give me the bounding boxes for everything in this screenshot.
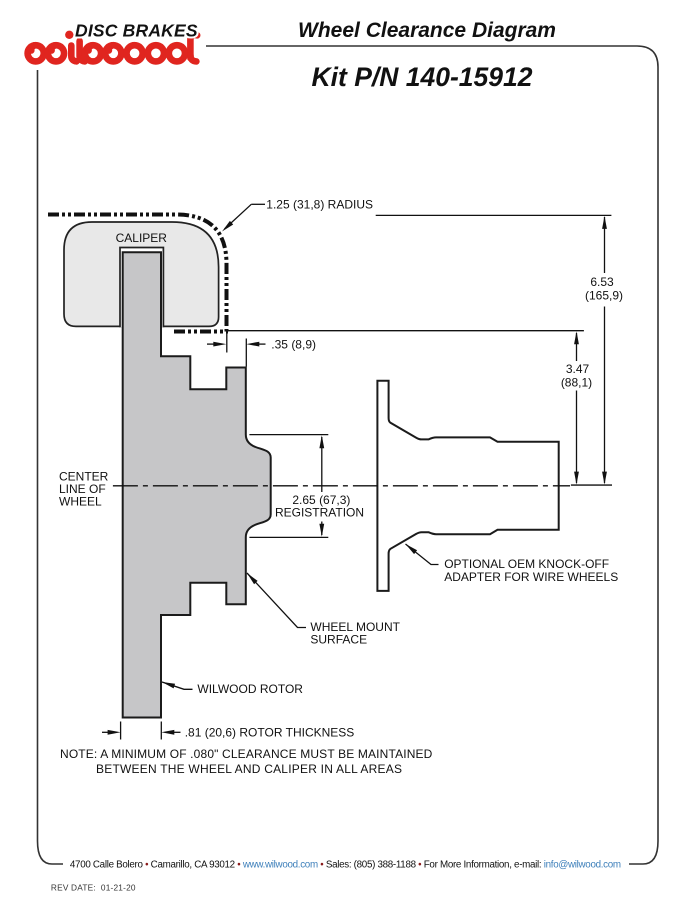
svg-text:3.47: 3.47 <box>566 362 590 376</box>
svg-text:REV DATE: 01-21-20: REV DATE: 01-21-20 <box>51 883 136 893</box>
svg-text:OPTIONAL OEM KNOCK-OFF: OPTIONAL OEM KNOCK-OFF <box>444 557 609 571</box>
svg-text:Kit P/N 140-15912: Kit P/N 140-15912 <box>312 62 533 92</box>
svg-text:CALIPER: CALIPER <box>116 231 168 245</box>
svg-text:WHEEL: WHEEL <box>59 494 102 508</box>
svg-text:6.53: 6.53 <box>590 275 614 289</box>
svg-text:4700 Calle Bolero • Camarillo,: 4700 Calle Bolero • Camarillo, CA 93012 … <box>70 860 621 871</box>
svg-text:DISC BRAKES: DISC BRAKES <box>75 21 198 41</box>
svg-text:NOTE: A MINIMUM OF .080" CLEAR: NOTE: A MINIMUM OF .080" CLEARANCE MUST … <box>60 747 433 761</box>
svg-text:.35 (8,9): .35 (8,9) <box>271 338 316 352</box>
svg-text:1.25 (31,8) RADIUS: 1.25 (31,8) RADIUS <box>266 198 373 212</box>
svg-text:BETWEEN THE WHEEL AND CALIPER: BETWEEN THE WHEEL AND CALIPER IN ALL ARE… <box>96 762 402 776</box>
svg-text:.81 (20,6) ROTOR THICKNESS: .81 (20,6) ROTOR THICKNESS <box>185 726 355 740</box>
svg-text:(165,9): (165,9) <box>585 289 623 303</box>
svg-text:WILWOOD ROTOR: WILWOOD ROTOR <box>197 682 303 696</box>
svg-text:(88,1): (88,1) <box>561 376 592 390</box>
svg-text:ADAPTER FOR WIRE WHEELS: ADAPTER FOR WIRE WHEELS <box>444 570 618 584</box>
svg-text:REGISTRATION: REGISTRATION <box>275 506 364 520</box>
svg-text:Wheel Clearance Diagram: Wheel Clearance Diagram <box>298 19 556 42</box>
svg-text:SURFACE: SURFACE <box>310 633 367 647</box>
